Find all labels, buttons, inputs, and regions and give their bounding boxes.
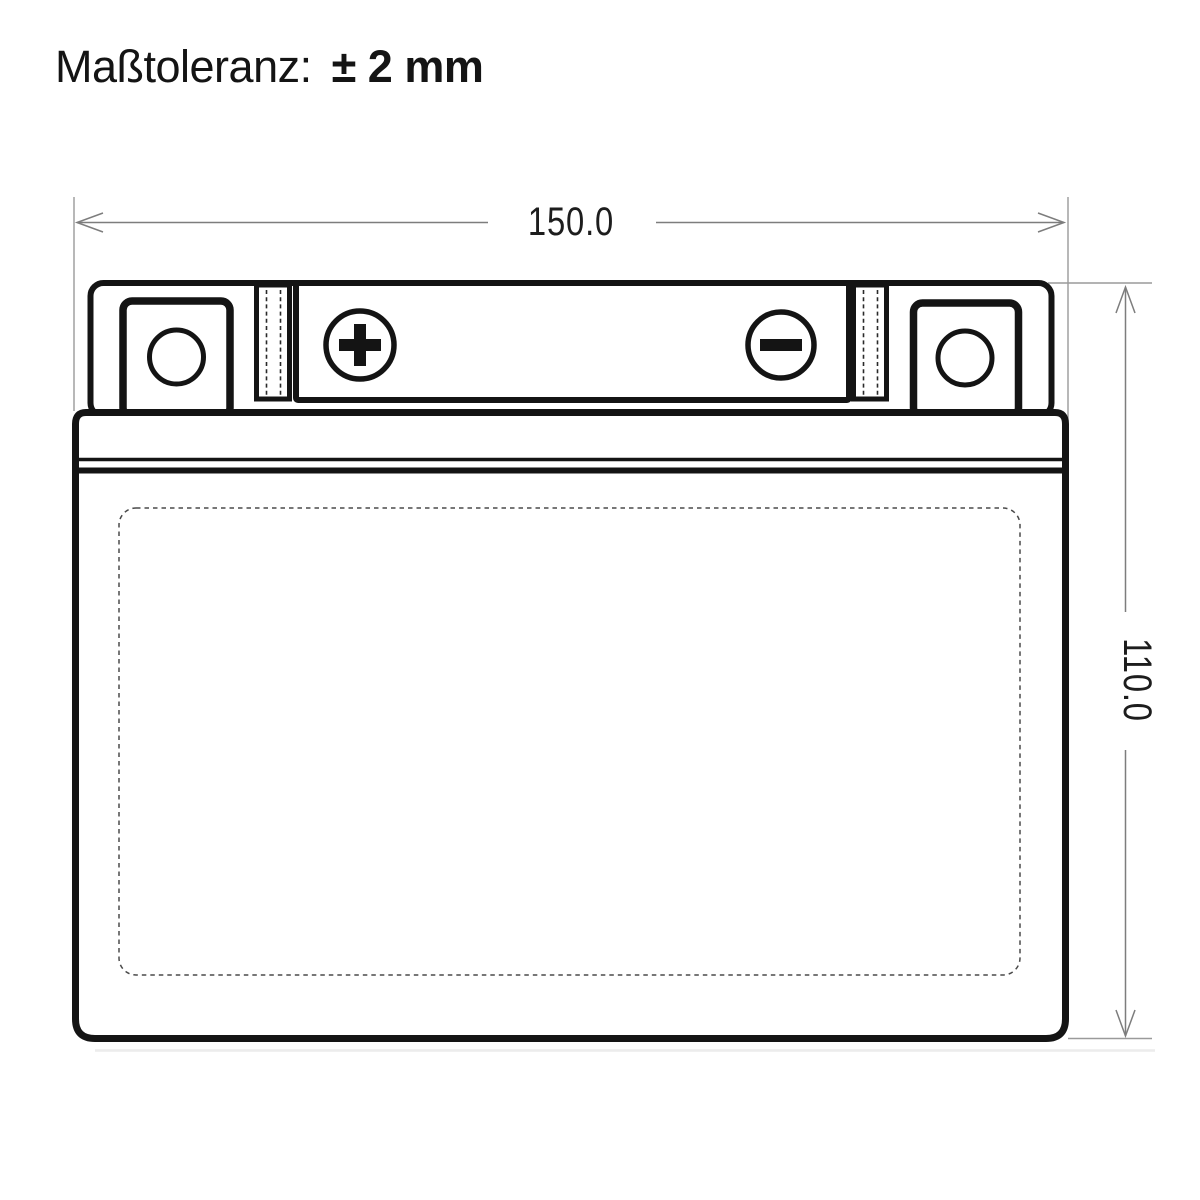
bolt-block-right-outline	[914, 303, 1019, 417]
battery-terminal-deck	[91, 283, 1052, 417]
divider-strip-left	[257, 285, 290, 399]
battery-dimension-drawing: 150.0 110.0	[0, 0, 1200, 1200]
width-dimension-value: 150.0	[528, 199, 614, 244]
battery-body	[76, 413, 1156, 1051]
divider-strip-right	[854, 285, 887, 399]
technical-drawing-page: Maßtoleranz: ± 2 mm 150.0 110.0	[0, 0, 1200, 1200]
height-dimension-value: 110.0	[1115, 638, 1160, 722]
bolt-block-left-outline	[123, 301, 230, 417]
plus-terminal-bar-v	[354, 324, 366, 366]
battery-body-outline	[76, 413, 1066, 1039]
divider-strip-right-outline	[854, 285, 887, 399]
minus-terminal-bar	[760, 339, 802, 351]
bolt-block-right	[914, 303, 1019, 417]
divider-strip-left-outline	[257, 285, 290, 399]
bolt-block-left	[123, 301, 230, 417]
